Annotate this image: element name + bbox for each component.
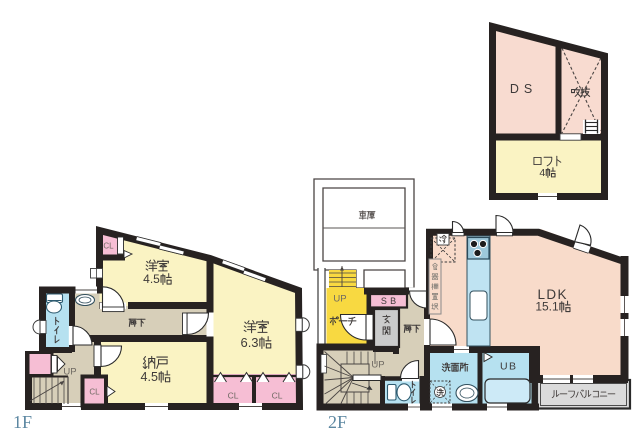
svg-text:3: 3 [251, 335, 258, 350]
svg-text:1: 1 [552, 300, 559, 314]
svg-text:6: 6 [240, 335, 247, 350]
svg-text:P: P [70, 366, 76, 377]
svg-text:4: 4 [141, 370, 148, 384]
svg-text:2F: 2F [328, 412, 347, 432]
svg-text:P: P [378, 359, 384, 370]
svg-text:S: S [381, 296, 387, 306]
svg-text:S: S [524, 82, 532, 96]
svg-text:B: B [509, 361, 516, 373]
svg-text:L: L [95, 387, 100, 396]
svg-text:5: 5 [151, 370, 158, 384]
svg-text:L: L [278, 390, 283, 400]
svg-text:D: D [510, 82, 519, 96]
svg-text:1F: 1F [13, 412, 32, 432]
svg-text:U: U [500, 361, 508, 373]
svg-text:L: L [234, 390, 239, 400]
svg-text:L: L [109, 241, 114, 250]
svg-text:5: 5 [153, 272, 160, 286]
svg-text:K: K [558, 287, 567, 302]
svg-text:4: 4 [539, 167, 545, 179]
svg-text:B: B [390, 296, 396, 306]
svg-text:P: P [340, 293, 346, 304]
